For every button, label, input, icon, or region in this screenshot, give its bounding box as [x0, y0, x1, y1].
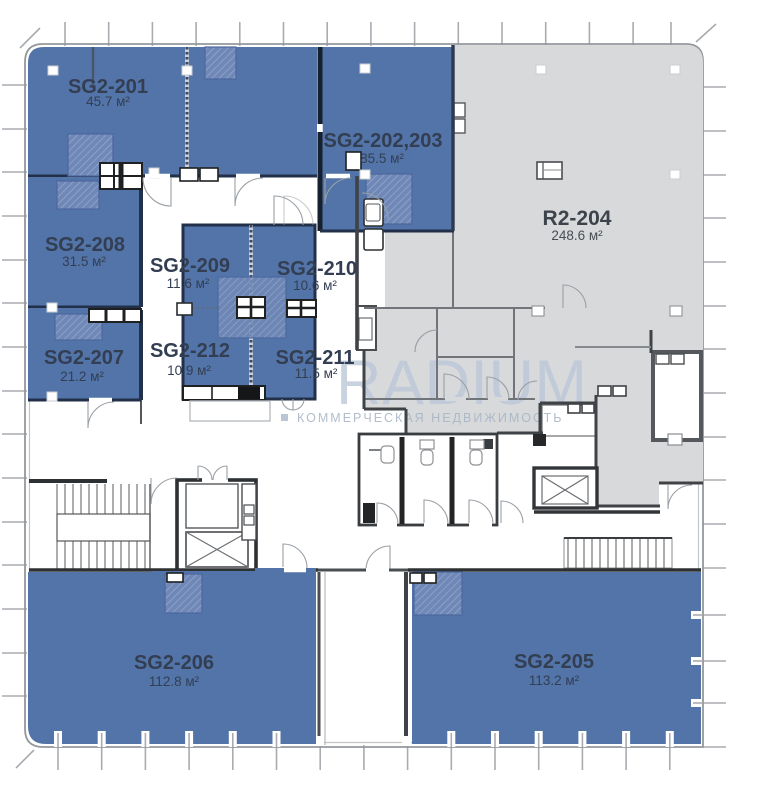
svg-text:SG2-212: SG2-212: [150, 340, 230, 362]
svg-text:21.2 м²: 21.2 м²: [60, 369, 104, 384]
svg-text:10.9 м²: 10.9 м²: [167, 363, 211, 378]
svg-text:SG2-210: SG2-210: [277, 258, 357, 280]
svg-text:SG2-209: SG2-209: [150, 255, 230, 277]
svg-text:11.6 м²: 11.6 м²: [167, 276, 210, 291]
svg-text:R2-204: R2-204: [543, 207, 612, 230]
svg-text:11.5 м²: 11.5 м²: [295, 366, 338, 381]
svg-text:85.5 м²: 85.5 м²: [360, 151, 404, 166]
svg-text:113.2 м²: 113.2 м²: [529, 673, 580, 688]
svg-text:SG2-206: SG2-206: [134, 652, 214, 674]
svg-text:SG2-205: SG2-205: [514, 651, 594, 673]
svg-text:31.5 м²: 31.5 м²: [62, 254, 106, 269]
svg-text:45.7 м²: 45.7 м²: [86, 94, 130, 109]
svg-text:248.6 м²: 248.6 м²: [551, 228, 603, 243]
svg-text:112.8 м²: 112.8 м²: [149, 674, 200, 689]
svg-text:КОММЕРЧЕСКАЯ НЕДВИЖИМОСТЬ: КОММЕРЧЕСКАЯ НЕДВИЖИМОСТЬ: [297, 411, 563, 425]
svg-text:SG2-208: SG2-208: [45, 234, 125, 256]
svg-text:10.6 м²: 10.6 м²: [293, 278, 337, 293]
svg-text:SG2-202,203: SG2-202,203: [324, 130, 443, 152]
svg-text:SG2-207: SG2-207: [44, 347, 124, 369]
